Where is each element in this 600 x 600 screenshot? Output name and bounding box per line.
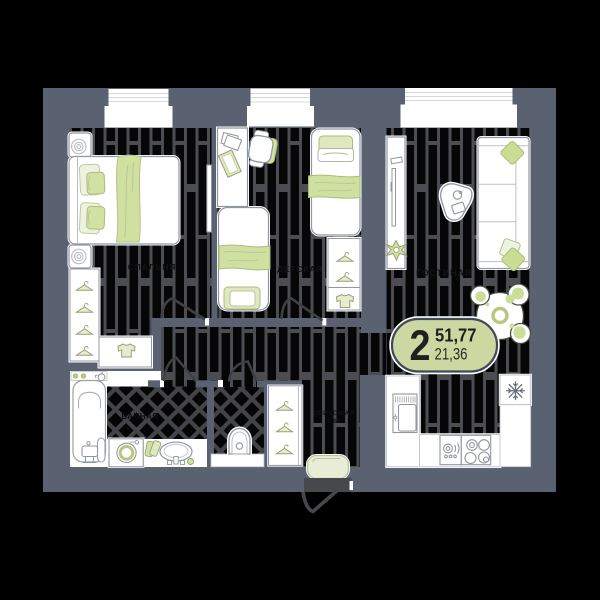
svg-text:ПРИХОЖАЯ: ПРИХОЖАЯ <box>313 410 354 417</box>
svg-text:ДЕТСКАЯ: ДЕТСКАЯ <box>277 264 323 274</box>
svg-text:51,77: 51,77 <box>435 326 477 346</box>
svg-text:3,60: 3,60 <box>327 418 341 425</box>
svg-text:21,36: 21,36 <box>435 345 468 364</box>
svg-text:ГОСТИНАЯ: ГОСТИНАЯ <box>416 268 472 278</box>
svg-text:2: 2 <box>410 322 431 370</box>
svg-text:ВАННАЯ: ВАННАЯ <box>121 412 158 421</box>
svg-text:СПАЛЬНЯ: СПАЛЬНЯ <box>128 262 176 272</box>
